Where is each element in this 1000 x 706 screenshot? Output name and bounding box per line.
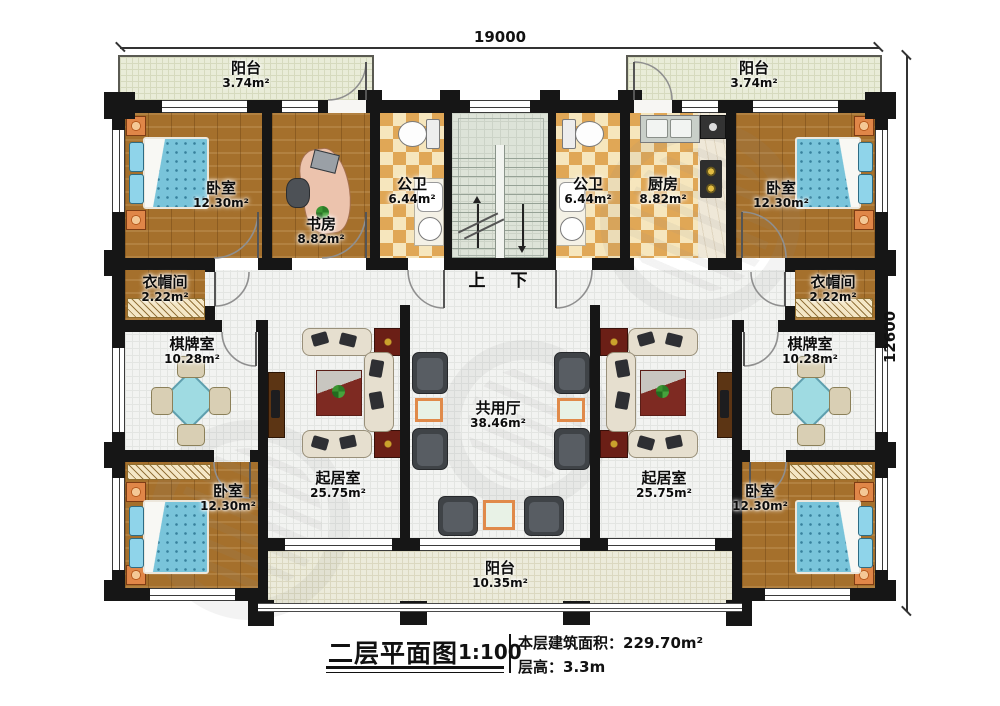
wall <box>370 113 380 258</box>
bed-sheet <box>145 139 167 207</box>
stair-up-line <box>477 204 479 248</box>
wall <box>785 258 795 272</box>
window <box>112 478 125 570</box>
pillow <box>858 174 873 204</box>
burner <box>703 164 719 179</box>
pilaster <box>875 580 896 601</box>
toilet-tank <box>562 119 576 149</box>
games-chair <box>771 387 793 415</box>
wall <box>548 113 556 270</box>
room-label-bedroom-br: 卧室 12.30m² <box>732 483 788 513</box>
room-area: 8.82m² <box>639 193 686 206</box>
room-name: 阳台 <box>472 560 528 577</box>
dimension-line-top <box>120 47 880 49</box>
armchair <box>554 352 590 394</box>
armchair <box>554 428 590 470</box>
room-area: 12.30m² <box>753 197 809 210</box>
pilaster <box>104 92 135 119</box>
floor-area-line: 本层建筑面积：229.70m² <box>518 632 703 653</box>
sink-basin <box>646 119 668 138</box>
room-name: 衣帽间 <box>141 274 188 291</box>
window <box>875 130 888 212</box>
pilaster <box>865 92 896 119</box>
room-label-bath-right: 公卫 6.44m² <box>564 176 611 206</box>
wall <box>205 258 215 272</box>
stair-down-line <box>522 204 524 248</box>
window <box>282 100 318 113</box>
stair-up-label: 上 <box>469 266 486 291</box>
pilaster <box>440 90 460 113</box>
sofa-cushion <box>615 359 631 378</box>
door-games-right <box>744 332 778 366</box>
burner <box>703 181 719 196</box>
door-opening <box>328 100 366 113</box>
toilet <box>575 121 604 147</box>
wall <box>786 450 875 462</box>
bed-sheet <box>145 502 167 572</box>
room-area: 6.44m² <box>564 193 611 206</box>
door-games-left <box>222 332 256 366</box>
title-separator <box>509 634 511 673</box>
stair-down-arrow <box>518 246 526 253</box>
plant <box>332 385 345 398</box>
wall <box>592 258 634 270</box>
pillow <box>129 142 144 172</box>
room-name: 卧室 <box>200 483 256 500</box>
wall <box>708 258 742 270</box>
room-name: 卧室 <box>732 483 788 500</box>
stair-up-arrow <box>473 196 481 203</box>
tea-table <box>557 398 585 422</box>
wall <box>732 450 750 462</box>
window <box>608 538 715 551</box>
room-label-cloak-right: 衣帽间 2.22m² <box>809 274 856 304</box>
wall <box>580 538 608 551</box>
wall <box>620 113 630 258</box>
wall <box>392 538 420 551</box>
room-area: 12.30m² <box>732 500 788 513</box>
room-name: 公卫 <box>564 176 611 193</box>
room-area: 10.28m² <box>782 353 838 366</box>
wall <box>400 305 410 551</box>
armchair <box>438 496 478 536</box>
wall <box>715 538 742 551</box>
door-balcony-right <box>634 62 672 100</box>
window <box>112 130 125 212</box>
wall <box>726 113 736 258</box>
wardrobe-hatch <box>127 464 211 480</box>
wall <box>786 258 888 270</box>
stair-down-label: 下 <box>511 266 528 291</box>
bed-sheet <box>837 502 859 572</box>
stair-stringer <box>495 145 505 258</box>
room-area: 38.46m² <box>470 417 526 430</box>
sliding-door <box>420 538 580 551</box>
pillow <box>858 142 873 172</box>
room-label-kitchen: 厨房 8.82m² <box>639 176 686 206</box>
window <box>765 588 850 601</box>
room-area: 25.75m² <box>636 487 692 500</box>
door-bedroom-tl <box>214 212 258 258</box>
nightstand <box>126 482 146 502</box>
window <box>470 100 530 113</box>
wall <box>366 258 408 270</box>
room-area: 12.30m² <box>200 500 256 513</box>
tea-table <box>483 500 515 530</box>
door-bedroom-tr <box>742 212 786 258</box>
window <box>112 348 125 432</box>
pillow <box>129 506 144 536</box>
room-area: 8.82m² <box>297 233 344 246</box>
room-area: 2.22m² <box>809 291 856 304</box>
armchair <box>412 428 448 470</box>
room-label-bedroom-bl: 卧室 12.30m² <box>200 483 256 513</box>
window <box>753 100 838 113</box>
side-table <box>374 430 402 458</box>
wall <box>590 305 600 551</box>
room-name: 阳台 <box>730 60 777 77</box>
wall <box>250 450 268 462</box>
pillow <box>129 174 144 204</box>
room-name: 卧室 <box>193 180 249 197</box>
dimension-height: 12600 <box>881 302 899 372</box>
room-label-study: 书房 8.82m² <box>297 216 344 246</box>
room-area: 3.74m² <box>730 77 777 90</box>
games-chair <box>177 424 205 446</box>
nightstand <box>854 482 874 502</box>
kitchen-appliance <box>700 115 726 139</box>
wall <box>125 320 222 332</box>
plant <box>656 385 669 398</box>
window <box>162 100 247 113</box>
title-underline <box>326 666 504 669</box>
room-label-balcony-tl: 阳台 3.74m² <box>222 60 269 90</box>
games-chair <box>151 387 173 415</box>
room-label-bedroom-tl: 卧室 12.30m² <box>193 180 249 210</box>
room-label-living-left: 起居室 25.75m² <box>310 470 366 500</box>
tv <box>720 390 729 418</box>
pilaster <box>104 580 125 601</box>
wall <box>125 450 214 462</box>
window <box>875 478 888 570</box>
title-underline-thin <box>326 672 504 673</box>
nightstand <box>126 116 146 136</box>
wall <box>258 538 285 551</box>
room-label-balcony-tr: 阳台 3.74m² <box>730 60 777 90</box>
wall <box>778 320 875 332</box>
room-area: 6.44m² <box>388 193 435 206</box>
armchair <box>524 496 564 536</box>
wall <box>258 258 292 270</box>
floor-height-label: 层高： <box>518 658 563 676</box>
room-name: 卧室 <box>753 180 809 197</box>
sink <box>560 217 584 241</box>
door-bath-right <box>556 270 592 308</box>
tea-table <box>415 398 443 422</box>
room-name: 书房 <box>297 216 344 233</box>
room-area: 3.74m² <box>222 77 269 90</box>
dimension-line-right <box>906 55 908 612</box>
pillow <box>858 506 873 536</box>
plan-scale: 1:100 <box>458 640 522 664</box>
window <box>150 588 235 601</box>
door-cloak-left <box>215 272 249 306</box>
room-label-hall: 共用厅 38.46m² <box>470 400 526 430</box>
bed-sheet <box>837 139 859 207</box>
toilet-tank <box>426 119 440 149</box>
pilaster <box>875 442 896 468</box>
room-name: 起居室 <box>310 470 366 487</box>
pilaster <box>104 442 125 468</box>
room-area: 10.28m² <box>164 353 220 366</box>
floor-height-value: 3.3m <box>563 658 605 676</box>
sink <box>418 217 442 241</box>
door-balcony-left <box>328 62 366 100</box>
games-chair <box>829 387 851 415</box>
wall <box>262 113 272 258</box>
room-name: 衣帽间 <box>809 274 856 291</box>
games-chair <box>209 387 231 415</box>
side-table <box>600 430 628 458</box>
wall <box>112 258 214 270</box>
floor-area-value: 229.70m² <box>623 634 703 652</box>
room-name: 起居室 <box>636 470 692 487</box>
room-label-games-left: 棋牌室 10.28m² <box>164 336 220 366</box>
room-area: 10.35m² <box>472 577 528 590</box>
bed <box>795 500 861 574</box>
pilaster <box>540 90 560 113</box>
bed <box>143 500 209 574</box>
room-label-balcony-bottom: 阳台 10.35m² <box>472 560 528 590</box>
room-name: 棋牌室 <box>164 336 220 353</box>
floor-height-line: 层高：3.3m <box>518 656 605 677</box>
pillow <box>129 538 144 568</box>
wardrobe-hatch <box>789 464 873 480</box>
floor-plan: 阳台 3.74m² 阳台 3.74m² 卧室 12.30m² 卧室 12.30m… <box>0 0 1000 706</box>
sofa-cushion <box>369 391 385 410</box>
room-label-games-right: 棋牌室 10.28m² <box>782 336 838 366</box>
room-name: 阳台 <box>222 60 269 77</box>
room-name: 公卫 <box>388 176 435 193</box>
floor-area-label: 本层建筑面积： <box>518 634 623 652</box>
room-label-bath-left: 公卫 6.44m² <box>388 176 435 206</box>
room-label-bedroom-tr: 卧室 12.30m² <box>753 180 809 210</box>
room-name: 共用厅 <box>470 400 526 417</box>
room-label-living-right: 起居室 25.75m² <box>636 470 692 500</box>
wall <box>444 113 452 270</box>
nightstand <box>854 210 874 230</box>
wall <box>444 258 556 270</box>
door-cloak-right <box>751 272 785 306</box>
door-bath-left <box>408 270 444 308</box>
door-opening <box>634 100 672 113</box>
plan-title: 二层平面图 <box>328 634 458 670</box>
room-name: 棋牌室 <box>782 336 838 353</box>
pillow <box>858 538 873 568</box>
window <box>285 538 392 551</box>
toilet <box>398 121 427 147</box>
armchair <box>412 352 448 394</box>
room-area: 12.30m² <box>193 197 249 210</box>
dimension-width: 19000 <box>474 28 526 46</box>
window <box>682 100 718 113</box>
games-chair <box>797 424 825 446</box>
tv <box>271 390 280 418</box>
room-name: 厨房 <box>639 176 686 193</box>
room-area: 2.22m² <box>141 291 188 304</box>
nightstand <box>854 116 874 136</box>
nightstand <box>126 210 146 230</box>
room-label-cloak-left: 衣帽间 2.22m² <box>141 274 188 304</box>
sink-basin <box>670 119 692 138</box>
desk-chair <box>286 178 310 208</box>
room-area: 25.75m² <box>310 487 366 500</box>
balcony-railing <box>258 603 742 612</box>
